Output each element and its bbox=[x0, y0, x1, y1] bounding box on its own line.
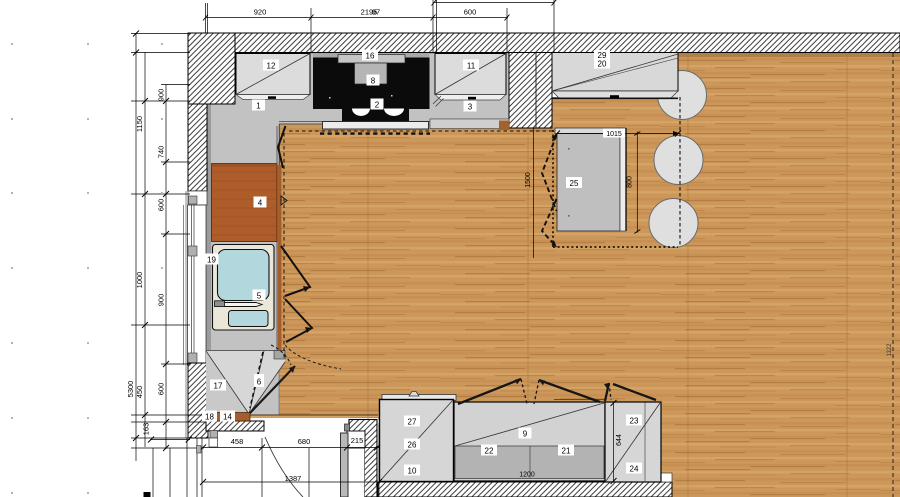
svg-text:26: 26 bbox=[408, 441, 417, 450]
svg-text:19: 19 bbox=[207, 256, 216, 265]
svg-text:27: 27 bbox=[408, 418, 417, 427]
svg-text:450: 450 bbox=[135, 386, 144, 399]
svg-text:900: 900 bbox=[157, 294, 166, 307]
svg-text:600: 600 bbox=[157, 199, 166, 212]
svg-text:10: 10 bbox=[408, 467, 417, 476]
svg-text:18: 18 bbox=[205, 413, 214, 422]
svg-text:14: 14 bbox=[223, 413, 232, 422]
svg-text:740: 740 bbox=[157, 146, 166, 159]
svg-text:1122: 1122 bbox=[887, 343, 893, 357]
svg-text:1200: 1200 bbox=[519, 472, 535, 479]
svg-text:600: 600 bbox=[157, 383, 166, 396]
svg-text:97: 97 bbox=[372, 8, 380, 17]
svg-text:600: 600 bbox=[464, 8, 477, 17]
svg-text:644: 644 bbox=[616, 434, 623, 446]
svg-text:1387: 1387 bbox=[285, 474, 302, 483]
svg-text:8: 8 bbox=[371, 77, 376, 86]
svg-text:9: 9 bbox=[523, 430, 528, 439]
svg-text:800: 800 bbox=[627, 176, 634, 188]
svg-text:5: 5 bbox=[257, 292, 262, 301]
svg-text:4: 4 bbox=[258, 199, 263, 208]
svg-text:1000: 1000 bbox=[135, 272, 144, 289]
svg-text:25: 25 bbox=[570, 179, 579, 188]
svg-text:163: 163 bbox=[142, 423, 151, 436]
svg-text:920: 920 bbox=[254, 8, 267, 17]
svg-text:23: 23 bbox=[630, 417, 639, 426]
svg-text:21: 21 bbox=[562, 447, 571, 456]
svg-text:6: 6 bbox=[257, 378, 262, 387]
svg-text:2: 2 bbox=[375, 101, 380, 110]
svg-text:11: 11 bbox=[467, 62, 476, 71]
svg-text:458: 458 bbox=[231, 437, 244, 446]
svg-text:680: 680 bbox=[298, 437, 311, 446]
svg-text:17: 17 bbox=[214, 382, 223, 391]
svg-text:16: 16 bbox=[366, 52, 375, 61]
svg-text:22: 22 bbox=[485, 447, 494, 456]
svg-text:1015: 1015 bbox=[606, 131, 622, 138]
svg-text:215: 215 bbox=[351, 436, 364, 445]
svg-text:1500: 1500 bbox=[525, 172, 532, 188]
svg-text:20: 20 bbox=[598, 60, 607, 69]
svg-text:5300: 5300 bbox=[126, 381, 135, 398]
svg-text:1: 1 bbox=[256, 102, 261, 111]
svg-text:24: 24 bbox=[630, 465, 639, 474]
svg-text:900: 900 bbox=[157, 89, 166, 102]
svg-text:1150: 1150 bbox=[135, 116, 144, 132]
svg-text:12: 12 bbox=[267, 62, 276, 71]
svg-text:3: 3 bbox=[468, 103, 473, 112]
